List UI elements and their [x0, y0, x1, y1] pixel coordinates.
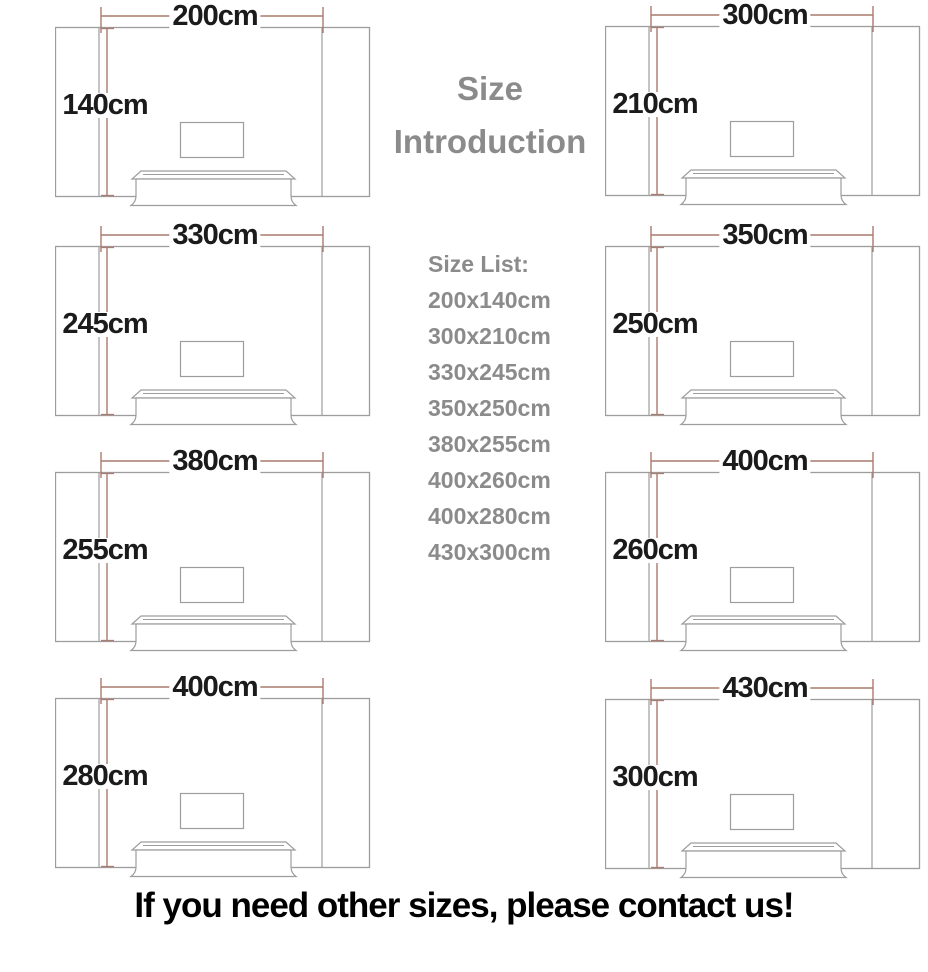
- wall-size-diagram: 400cm 280cm: [55, 674, 375, 888]
- wall-size-diagram: 200cm 140cm: [55, 3, 375, 217]
- width-dimension-label: 350cm: [719, 223, 810, 248]
- size-list-heading: Size List:: [428, 246, 551, 282]
- size-list-item: 350x250cm: [428, 390, 551, 426]
- size-chart-page: 200cm 140cm 300cm 210cm: [0, 0, 928, 972]
- size-list-item: 330x245cm: [428, 354, 551, 390]
- cabinet-body: [681, 178, 846, 205]
- tv-rectangle: [731, 342, 794, 377]
- width-dimension-label: 380cm: [169, 449, 260, 474]
- wall-size-diagram: 430cm 300cm: [605, 675, 925, 889]
- cabinet-body: [131, 398, 296, 425]
- size-list-item: 200x140cm: [428, 282, 551, 318]
- size-list-item: 430x300cm: [428, 534, 551, 570]
- tv-rectangle: [731, 795, 794, 830]
- wall-size-diagram: 380cm 255cm: [55, 448, 375, 662]
- size-list-item: 400x280cm: [428, 498, 551, 534]
- wall-size-diagram: 350cm 250cm: [605, 222, 925, 436]
- height-dimension-label: 255cm: [59, 538, 150, 563]
- cabinet-body: [131, 179, 296, 206]
- cabinet-body: [681, 624, 846, 651]
- size-list-item: 400x260cm: [428, 462, 551, 498]
- wall-size-diagram: 300cm 210cm: [605, 2, 925, 216]
- size-list-item: 380x255cm: [428, 426, 551, 462]
- height-dimension-label: 260cm: [609, 538, 700, 563]
- width-dimension-label: 400cm: [719, 449, 810, 474]
- tv-rectangle: [181, 568, 244, 603]
- height-dimension-label: 245cm: [59, 312, 150, 337]
- width-dimension-label: 300cm: [719, 3, 810, 28]
- width-dimension-label: 200cm: [169, 4, 260, 29]
- width-dimension-label: 400cm: [169, 675, 260, 700]
- footer-contact-note: If you need other sizes, please contact …: [0, 886, 928, 926]
- cabinet-body: [131, 850, 296, 877]
- cabinet-body: [681, 851, 846, 878]
- size-list: Size List: 200x140cm300x210cm330x245cm35…: [428, 246, 551, 570]
- width-dimension-label: 430cm: [719, 676, 810, 701]
- width-dimension-label: 330cm: [169, 223, 260, 248]
- height-dimension-label: 300cm: [609, 765, 700, 790]
- tv-rectangle: [731, 122, 794, 157]
- wall-size-diagram: 400cm 260cm: [605, 448, 925, 662]
- page-title: Size Introduction: [370, 62, 610, 168]
- cabinet-body: [681, 398, 846, 425]
- page-title-line1: Size: [370, 62, 610, 115]
- height-dimension-label: 250cm: [609, 312, 700, 337]
- size-list-items: 200x140cm300x210cm330x245cm350x250cm380x…: [428, 282, 551, 570]
- tv-rectangle: [181, 123, 244, 158]
- tv-rectangle: [181, 342, 244, 377]
- height-dimension-label: 280cm: [59, 764, 150, 789]
- height-dimension-label: 140cm: [59, 93, 150, 118]
- size-list-item: 300x210cm: [428, 318, 551, 354]
- wall-size-diagram: 330cm 245cm: [55, 222, 375, 436]
- tv-rectangle: [181, 794, 244, 829]
- tv-rectangle: [731, 568, 794, 603]
- cabinet-body: [131, 624, 296, 651]
- height-dimension-label: 210cm: [609, 92, 700, 117]
- page-title-line2: Introduction: [370, 115, 610, 168]
